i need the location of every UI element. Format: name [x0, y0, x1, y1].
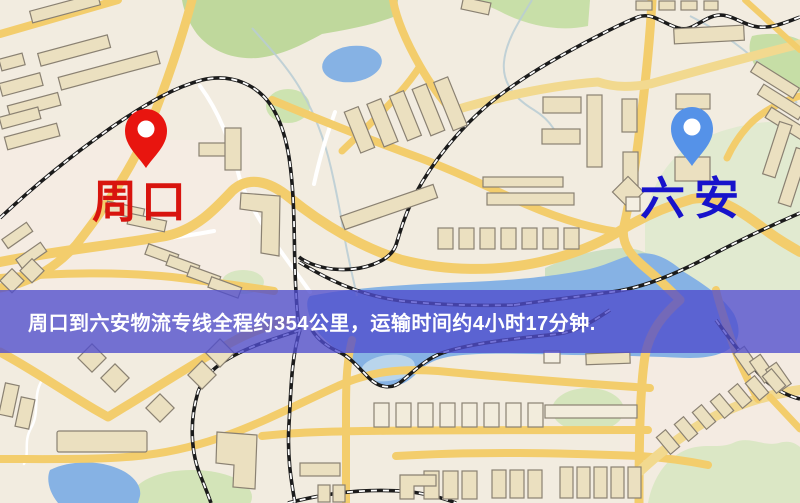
building: [659, 1, 675, 10]
building: [333, 485, 345, 502]
map-view[interactable]: 周口 六安 周口到六安物流专线全程约354公里，运输时间约4小时17分钟.: [0, 0, 800, 503]
destination-pin-icon[interactable]: [668, 102, 716, 166]
building: [510, 470, 524, 498]
building: [522, 228, 537, 249]
building: [577, 467, 590, 498]
building: [487, 193, 574, 205]
building: [57, 431, 147, 452]
origin-city-label: 周口: [92, 179, 190, 224]
building: [622, 99, 637, 132]
building: [564, 228, 579, 249]
building: [225, 128, 241, 170]
building: [587, 95, 602, 167]
route-info-banner: 周口到六安物流专线全程约354公里，运输时间约4小时17分钟.: [0, 290, 800, 353]
building: [611, 467, 624, 498]
building: [484, 403, 499, 427]
building: [492, 470, 506, 498]
building: [318, 485, 330, 502]
building: [462, 471, 477, 499]
building: [681, 1, 697, 10]
building: [543, 228, 558, 249]
map-canvas[interactable]: [0, 0, 800, 503]
route-info-text: 周口到六安物流专线全程约354公里，运输时间约4小时17分钟.: [0, 307, 596, 336]
building: [396, 403, 411, 427]
building: [300, 463, 340, 476]
building: [626, 197, 640, 211]
building: [374, 403, 389, 427]
building: [674, 25, 745, 44]
destination-city-label: 六安: [640, 176, 748, 221]
building: [459, 228, 474, 249]
building: [543, 97, 581, 113]
building: [480, 228, 495, 249]
building: [528, 403, 543, 427]
building: [704, 1, 718, 10]
pin-hole: [684, 119, 701, 136]
building: [628, 467, 641, 498]
building: [542, 129, 580, 144]
building: [501, 228, 516, 249]
building: [594, 467, 607, 498]
pin-shape[interactable]: [671, 107, 713, 166]
building: [506, 403, 521, 427]
pin-hole: [138, 121, 155, 138]
building: [438, 228, 453, 249]
building: [560, 467, 573, 498]
building: [462, 403, 477, 427]
pin-shape[interactable]: [125, 109, 167, 168]
origin-pin-icon[interactable]: [122, 104, 170, 168]
building: [636, 1, 652, 10]
building: [483, 177, 563, 187]
building: [528, 470, 542, 498]
building: [586, 352, 630, 365]
building: [443, 471, 458, 499]
building: [418, 403, 433, 427]
building: [545, 405, 637, 418]
building: [440, 403, 455, 427]
